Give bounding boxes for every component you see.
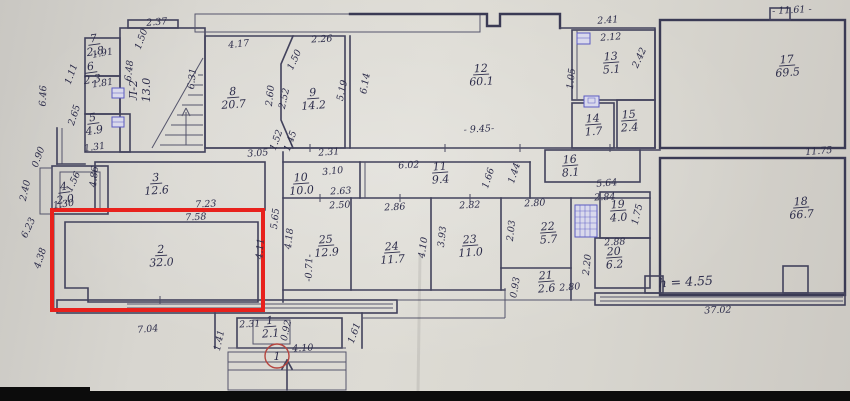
dimension-label: 1.91 [91,46,114,61]
dimension-label: 1.61 [346,321,364,345]
dimension-label: 1.66 [480,166,497,190]
room-number: 2 [156,243,165,256]
room-number: 21 [537,269,553,283]
dimension-label: 2.26 [310,33,333,45]
room-number: 18 [793,195,808,209]
room-area: 4.0 [608,210,627,224]
dimension-label: - 9.45- [463,123,494,136]
dimension-label: 7.58 [185,211,207,223]
dimension-label: 5.65 [269,208,282,230]
room-area: 69.5 [775,65,800,80]
room-area: 5.1 [602,62,620,76]
room-number: 1 [266,314,274,327]
room-area: 11.7 [380,252,405,267]
dimension-label: 0.90 [30,145,48,169]
room-label-11: 119.4 [431,159,450,186]
room-number: 24 [383,240,399,254]
room-area: 9.4 [431,172,449,186]
room-label-2: 232.0 [148,242,174,269]
dimension-label: 4.17 [227,38,251,51]
room-number: 25 [317,233,333,247]
room-area: 14.2 [301,98,326,113]
dimension-label: 2.80 [523,197,546,209]
room-number: 12 [473,62,488,76]
room-area: 11.0 [458,245,483,260]
room-label-15: 152.4 [619,107,639,134]
room-number: 14 [585,112,600,126]
dimension-label: 2.80 [558,281,581,294]
room-number: 6 [86,60,95,74]
room-number: 9 [309,86,317,99]
dimension-label: 2.40 [18,179,33,203]
dimension-label: 2.03 [505,220,518,243]
dimension-label: 7.04 [137,323,159,336]
dimension-label: 2.60 [264,85,277,108]
dimension-label: 3.05 [247,147,269,159]
height-note: h = 4.55 [658,273,713,291]
dimension-label: 2.86 [383,201,406,213]
dimension-label: 1.44 [506,161,523,185]
room-number: 7 [89,32,98,46]
dimension-label: 2.20 [581,254,594,277]
floor-plan-drawing: 1 Л-2 13.0 h = 4.55 12.1232.0312.642.054… [0,0,850,401]
room-number: 22 [539,220,555,234]
room-number: 3 [152,171,160,184]
dimension-label: 3.10 [322,165,344,178]
dimension-label: 3.93 [436,226,449,248]
dimension-label: 0.93 [508,276,523,299]
dimension-label: 1.75 [630,203,646,226]
dimension-label: 6.23 [19,216,38,240]
room-label-9: 914.2 [300,85,326,113]
room-area: 4.9 [84,123,104,138]
photo-edge-corner [0,387,90,401]
room-area: 12.9 [314,245,339,260]
room-number: 16 [562,153,577,167]
room-label-12: 1260.1 [468,61,494,88]
room-area: 20.7 [220,97,246,112]
room-area: 2.1 [260,326,279,340]
room-number: 13 [603,50,618,64]
vent-shaft-icon [575,205,597,237]
dimension-label: 6.31 [186,68,199,90]
svg-text:Л-2: Л-2 [127,80,140,101]
dimension-label: 6.48 [123,60,136,82]
dimension-label: 4.38 [32,246,49,270]
room-number: 8 [229,85,237,98]
dimension-label: 2.42 [630,46,649,71]
room-label-18: 1866.7 [788,194,814,222]
room-area: 6.2 [605,257,623,271]
room-label-25: 2512.9 [313,232,339,260]
dimension-label: 6.02 [398,159,420,171]
room-label-23: 2311.0 [457,232,483,260]
room-label-8: 820.7 [219,84,246,112]
dimension-label: 1.56 [64,170,83,194]
room-area: 60.1 [469,74,494,88]
room-area: 2.4 [619,120,638,134]
room-label-3: 312.6 [143,170,169,198]
room-area: 32.0 [149,255,174,269]
dimension-label: 1.05 [565,68,578,90]
room-label-24: 2411.7 [379,239,405,267]
plumbing-fixture-icons [112,33,599,127]
dimension-label: 11.75 [805,145,833,158]
dimension-label: 2.12 [599,31,622,44]
photo-edge-bar [0,391,850,401]
dimension-label: 4.11 [254,238,267,261]
room-label-10: 1010.0 [288,170,314,198]
svg-text:13.0: 13.0 [140,78,153,103]
dimension-label: 2.52 [277,87,292,111]
entrance-arrow-icon [282,360,292,390]
dimension-label: 2.31 [317,146,340,159]
dimension-label: 2.50 [328,199,351,211]
dimension-label: 0.92 [279,319,294,342]
room-label-13: 135.1 [602,49,621,76]
room-area: 1.7 [584,124,602,138]
dimension-label: 2.88 [603,236,626,248]
dimension-label: 6.14 [358,72,373,95]
dimension-label: 2.37 [145,16,169,29]
dimension-label: 4.10 [416,236,430,259]
dimension-label: 4.10 [291,342,314,354]
room-area: 10.0 [289,183,314,198]
dimension-label: -0.71- [304,254,316,282]
room-area: 12.6 [144,183,169,198]
room-number: 10 [293,171,308,185]
room-label-16: 168.1 [561,152,580,179]
room-label-17: 1769.5 [774,52,800,80]
dimension-label: 1.50 [285,48,304,72]
dimension-label: 4.86 [88,166,101,189]
room-area: 2.6 [536,281,555,295]
room-label-14: 141.7 [584,111,603,138]
room-number: 23 [461,233,477,247]
room-number: 11 [432,160,447,174]
room-number: 15 [621,108,636,122]
room-area: 66.7 [789,207,814,222]
room-label-21: 212.6 [536,268,556,295]
dimension-label: 7.23 [195,198,217,210]
dimension-label: 2.41 [596,14,619,27]
dimension-label: 4.18 [283,228,296,251]
room-area: 8.1 [561,165,579,179]
dimension-label: 5.64 [596,177,618,190]
dimension-label: - 11.61 - [772,4,812,17]
paper-crease [418,255,420,392]
dimension-label: 2.65 [66,103,83,127]
dimension-label: 2.84 [593,191,616,203]
dimension-label: 2.82 [458,199,481,211]
room-label-22: 225.7 [539,219,558,246]
room-label-20: 206.2 [605,244,624,271]
dimension-label: 1.81 [91,77,113,91]
floor-plan-photo: 1 Л-2 13.0 h = 4.55 12.1232.0312.642.054… [0,0,850,401]
room-number: 5 [88,111,97,125]
dimension-label: 37.02 [704,305,732,317]
dimension-label: 1.11 [63,62,81,86]
dimension-label: 6.46 [38,85,50,107]
dimension-label: 2.31 [238,318,261,330]
dimension-label: 1.50 [133,27,151,51]
walls-layer [40,8,845,390]
dimension-label: 5.19 [335,79,350,102]
entrance-number: 1 [274,350,281,363]
room-number: 17 [779,53,794,67]
dimension-label: 2.63 [329,185,352,197]
room-area: 5.7 [539,232,557,246]
